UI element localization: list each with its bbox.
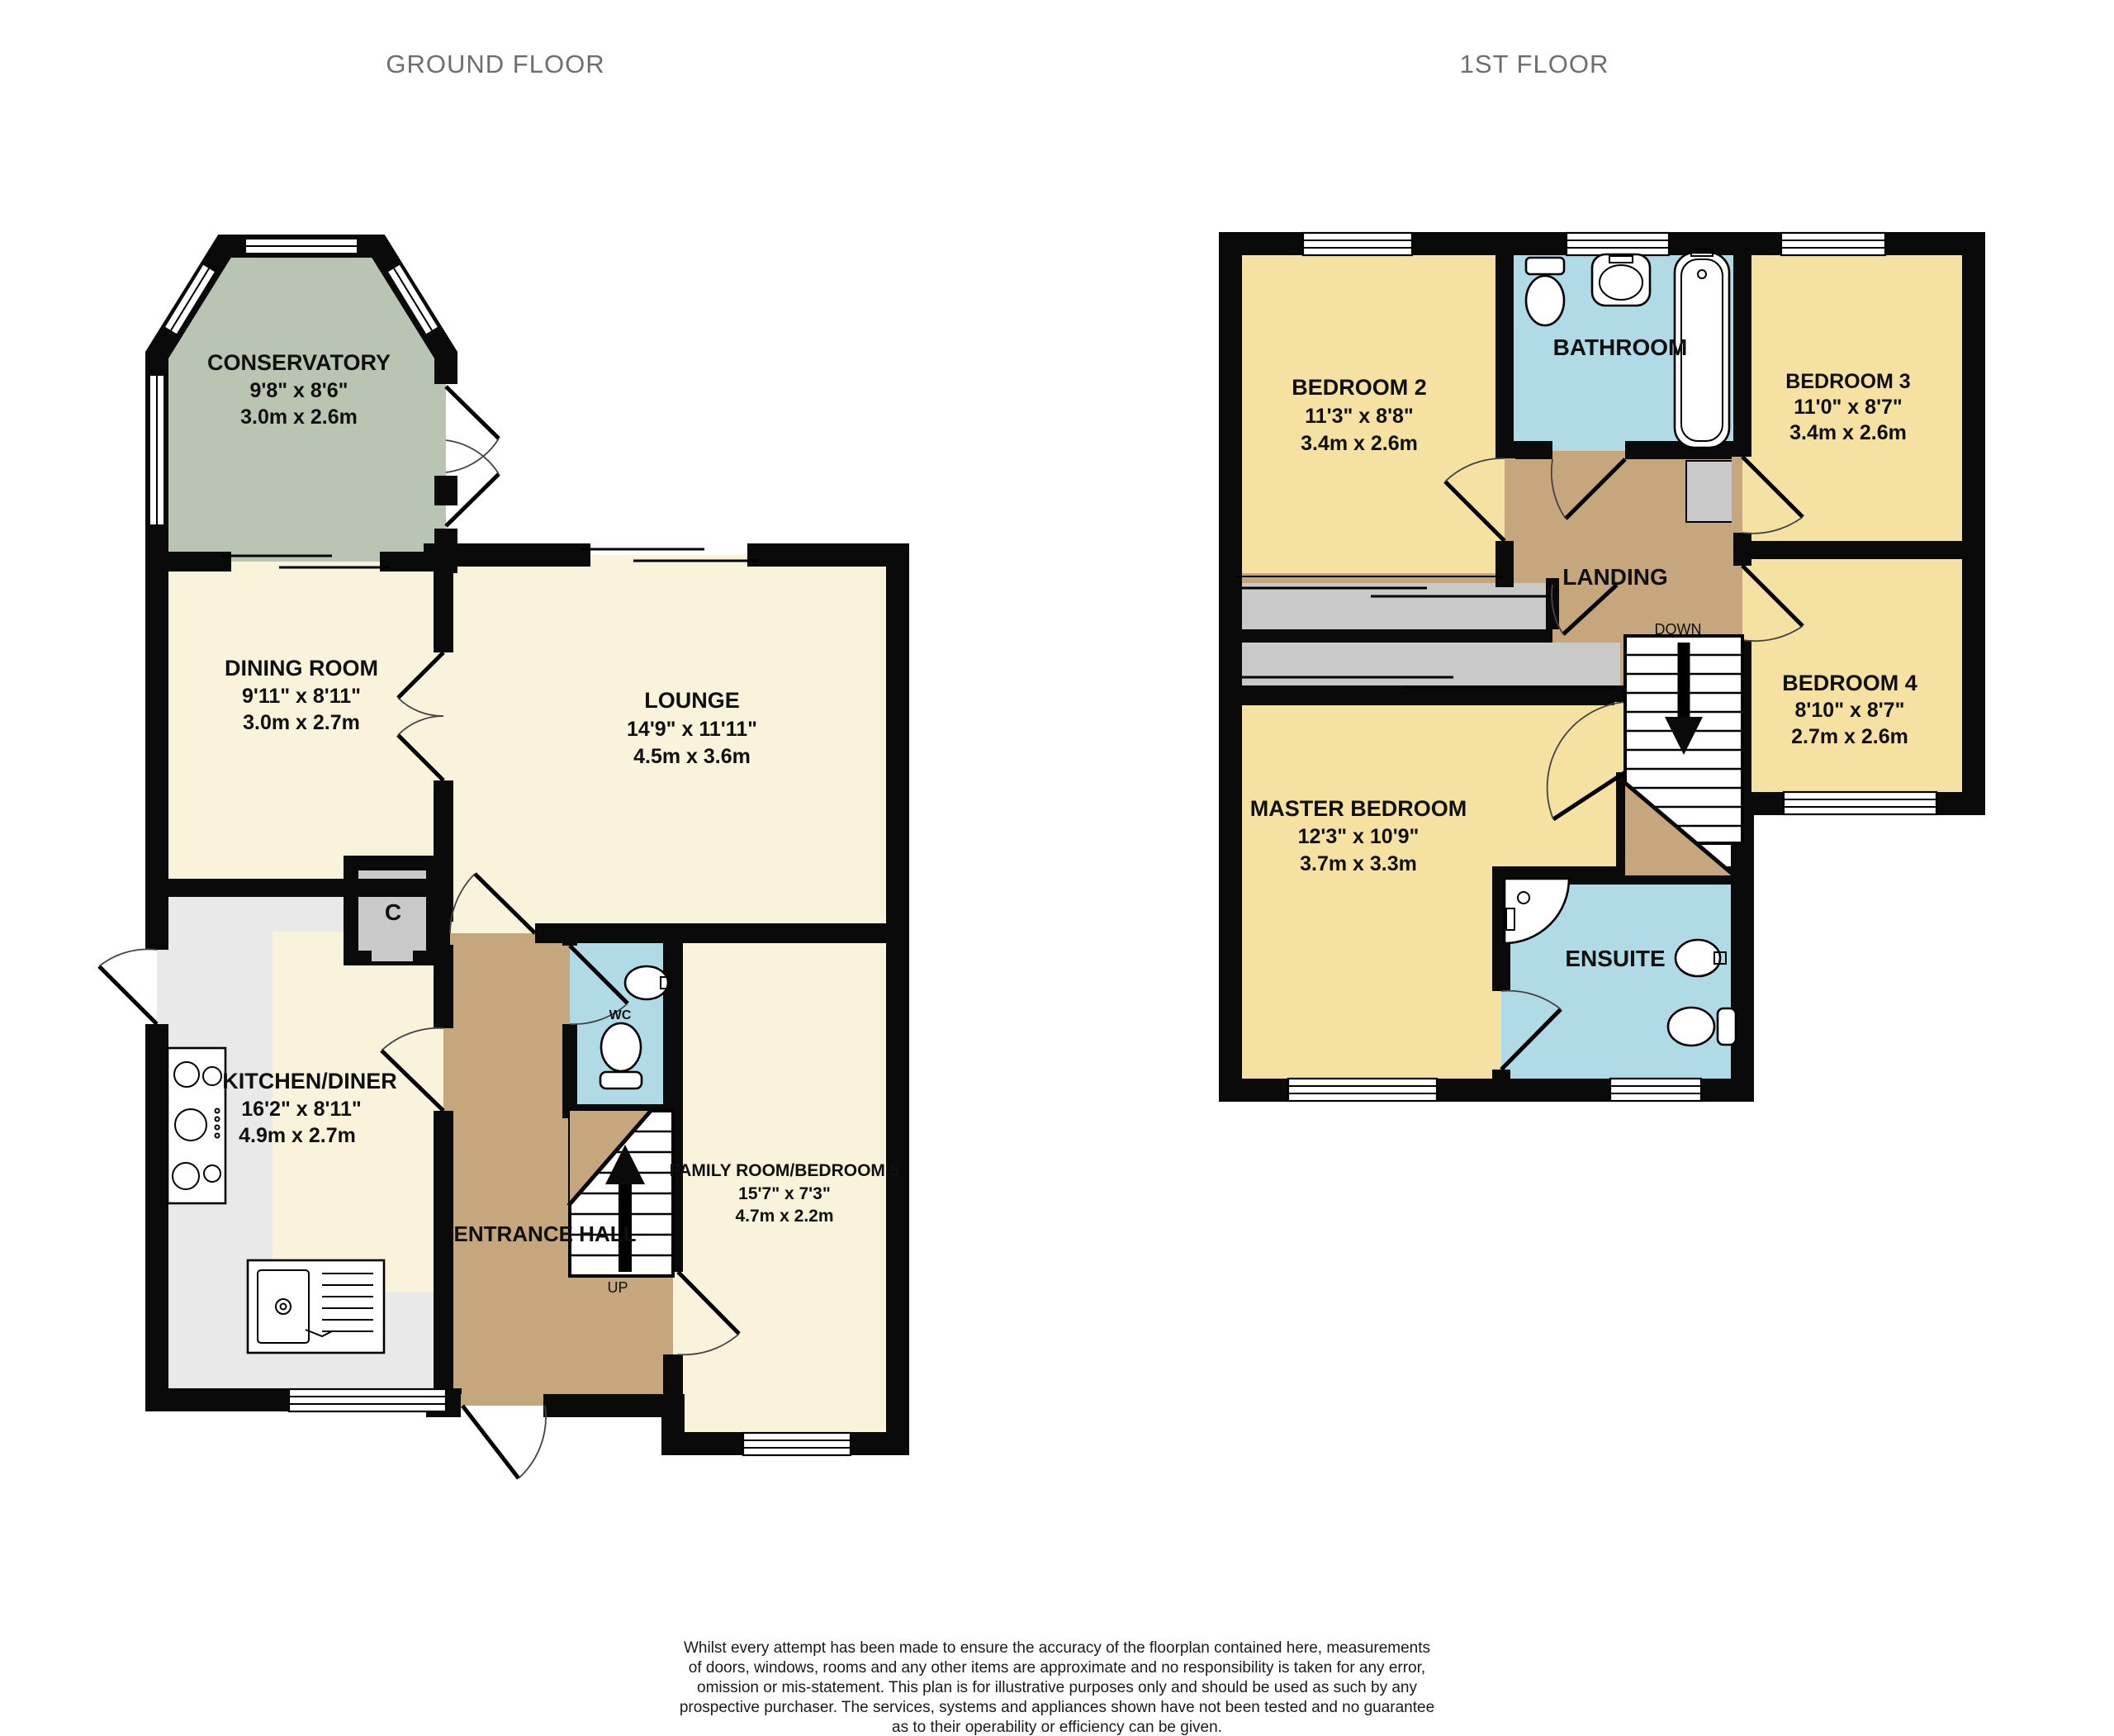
ensuite-name: ENSUITE xyxy=(1565,946,1665,971)
conservatory-metric: 3.0m x 2.6m xyxy=(240,406,358,429)
bathroom-toilet-icon xyxy=(1526,258,1564,325)
master-window xyxy=(1288,1079,1437,1101)
dining-name: DINING ROOM xyxy=(225,656,378,681)
bedroom4-name: BEDROOM 4 xyxy=(1782,671,1917,695)
lounge-patio-doors xyxy=(581,542,757,567)
family-room-window xyxy=(743,1433,851,1455)
master-name: MASTER BEDROOM xyxy=(1250,796,1467,821)
master-metric: 3.7m x 3.3m xyxy=(1300,852,1417,875)
family-metric: 4.7m x 2.2m xyxy=(735,1207,833,1226)
wc-name: WC xyxy=(609,1008,632,1022)
wardrobe-mid-wall xyxy=(1230,629,1552,643)
conservatory-french-doors xyxy=(434,384,499,529)
kitchen-imperial: 16'2" x 8'11" xyxy=(241,1098,361,1121)
floorplan-page: GROUND FLOOR 1ST FLOOR xyxy=(0,0,2114,1736)
bedroom2-metric: 3.4m x 2.6m xyxy=(1301,432,1418,455)
lounge-metric: 4.5m x 3.6m xyxy=(633,745,751,768)
ensuite-window xyxy=(1610,1079,1701,1101)
wc-toilet-icon xyxy=(600,1023,642,1089)
wardrobe-row1 xyxy=(1235,583,1552,629)
kitchen-window xyxy=(289,1389,446,1411)
family-name: FAMILY ROOM/BEDROOM 5 xyxy=(670,1161,900,1180)
first-floor-plan: BEDROOM 2 11'3" x 8'8" 3.4m x 2.6m BATHR… xyxy=(1230,233,1974,1101)
conservatory-dining-sliding-door xyxy=(221,550,390,573)
stairs-ground xyxy=(570,1111,673,1276)
disclaimer-line: of doors, windows, rooms and any other i… xyxy=(0,1658,2114,1678)
bedroom3-metric: 3.4m x 2.6m xyxy=(1789,421,1907,444)
master-imperial: 12'3" x 10'9" xyxy=(1298,825,1420,848)
bedroom3-name: BEDROOM 3 xyxy=(1785,370,1910,393)
bedroom2-name: BEDROOM 2 xyxy=(1292,375,1427,400)
disclaimer-line: as to their operability or efficiency ca… xyxy=(0,1718,2114,1736)
bedroom4-imperial: 8'10" x 8'7" xyxy=(1795,699,1905,722)
wardrobe-row2 xyxy=(1235,643,1620,685)
kitchen-metric: 4.9m x 2.7m xyxy=(239,1124,356,1147)
bathroom-name: BATHROOM xyxy=(1553,334,1688,360)
stairs-first xyxy=(1625,636,1742,875)
bedroom3-imperial: 11'0" x 8'7" xyxy=(1794,396,1903,419)
disclaimer-line: omission or mis-statement. This plan is … xyxy=(0,1678,2114,1698)
conservatory-imperial: 9'8" x 8'6" xyxy=(249,379,348,402)
stairs-down-label: DOWN xyxy=(1655,621,1702,638)
hob-icon xyxy=(168,1048,225,1203)
ensuite-toilet-icon xyxy=(1668,1008,1736,1046)
kitchen-sink-icon xyxy=(248,1260,384,1353)
bedroom2-window xyxy=(1303,233,1412,255)
landing-name: LANDING xyxy=(1562,564,1668,590)
disclaimer: Whilst every attempt has been made to en… xyxy=(0,1639,2114,1736)
lounge-name: LOUNGE xyxy=(644,688,740,713)
disclaimer-line: Whilst every attempt has been made to en… xyxy=(0,1639,2114,1658)
bedroom4-metric: 2.7m x 2.6m xyxy=(1791,725,1908,748)
room-lounge xyxy=(443,555,898,933)
floorplan-drawing: CONSERVATORY 9'8" x 8'6" 3.0m x 2.6m DIN… xyxy=(0,0,2114,1736)
entrance-hall-name: ENTRANCE HALL xyxy=(454,1221,637,1246)
front-door xyxy=(461,1394,546,1478)
dining-imperial: 9'11" x 8'11" xyxy=(242,685,361,708)
cupboard-label: C xyxy=(385,899,401,925)
bedroom3-window xyxy=(1781,233,1885,255)
stairs-up-label: UP xyxy=(607,1279,628,1296)
kitchen-side-door xyxy=(99,949,168,1024)
cupboard-c-opening xyxy=(372,946,413,961)
disclaimer-line: prospective purchaser. The services, sys… xyxy=(0,1698,2114,1718)
bathroom-window xyxy=(1567,233,1669,255)
bedroom4-window xyxy=(1784,792,1936,814)
kitchen-name: KITCHEN/DINER xyxy=(222,1069,397,1093)
bathroom-sink-icon xyxy=(1592,254,1650,306)
ground-floor-plan: CONSERVATORY 9'8" x 8'6" 3.0m x 2.6m DIN… xyxy=(99,246,900,1478)
bedroom2-imperial: 11'3" x 8'8" xyxy=(1305,405,1414,428)
dining-metric: 3.0m x 2.7m xyxy=(243,711,360,734)
conservatory-name: CONSERVATORY xyxy=(207,350,391,375)
lounge-imperial: 14'9" x 11'11" xyxy=(627,718,757,741)
family-imperial: 15'7" x 7'3" xyxy=(738,1184,831,1203)
